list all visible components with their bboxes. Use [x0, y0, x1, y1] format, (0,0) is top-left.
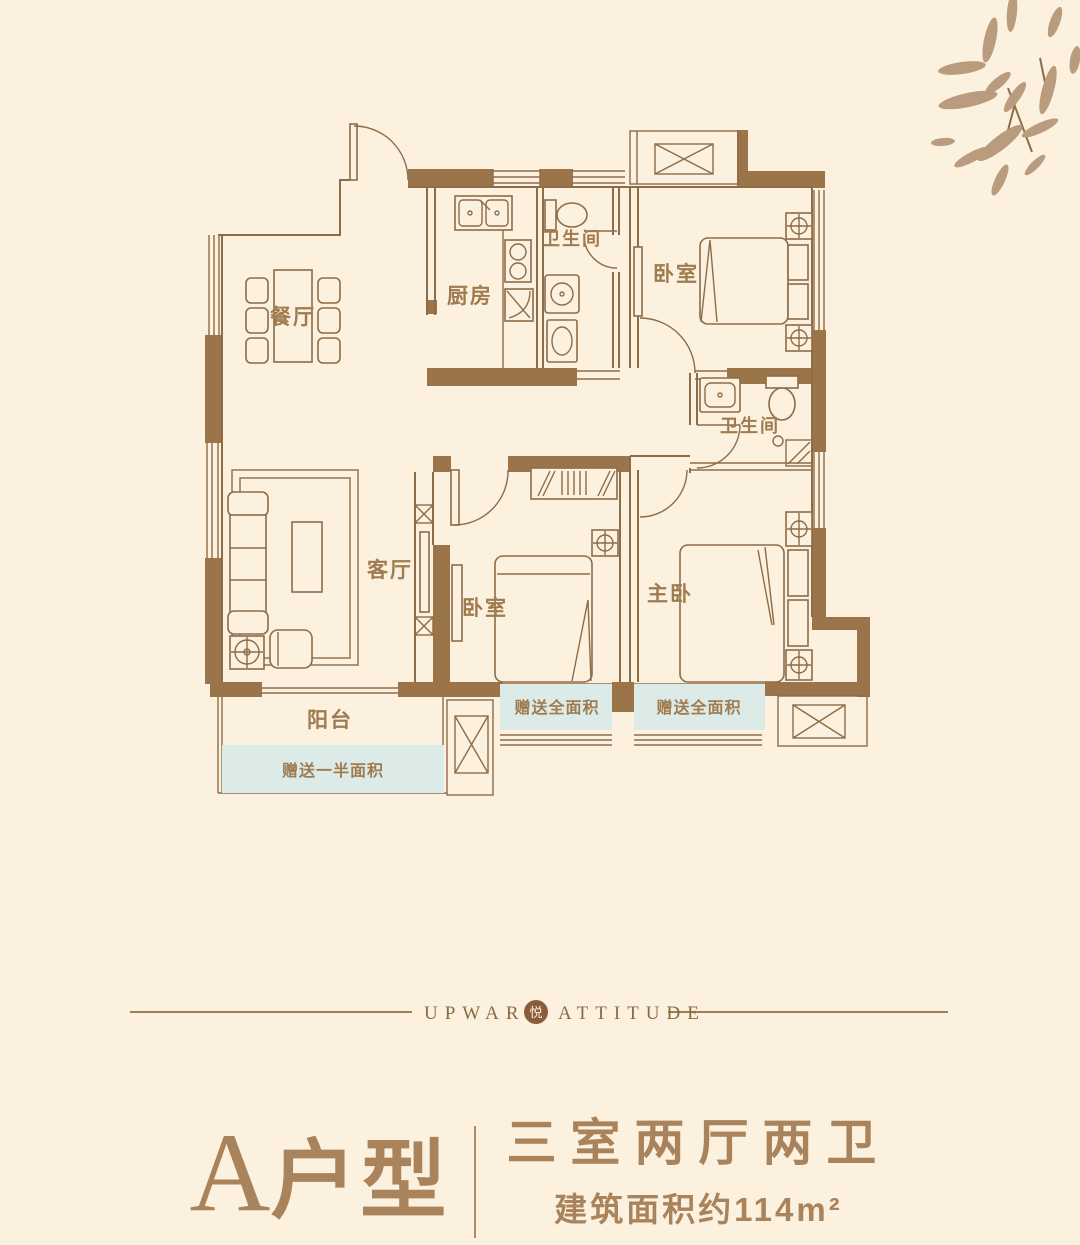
building-area-label: 建筑面积约114m² [554, 1183, 843, 1231]
headboard-cushion [788, 550, 808, 596]
kitchen-fixtures [455, 196, 533, 368]
bedroom2-door-arc [455, 470, 508, 525]
master-furniture [680, 512, 812, 682]
floor-drain [773, 436, 783, 446]
kitchen-sink [455, 196, 512, 230]
headboard-cushion [788, 245, 808, 280]
plan-spec: 三室两厅两卫 建筑面积约114m² [506, 1116, 890, 1231]
floorplan-page: { "plan": { "rooms": { "dining": "餐厅", "… [0, 0, 1080, 1245]
floor-plan-svg: 赠送一半面积 赠送全面积 赠送全面积 [0, 0, 1080, 1045]
gift-label-full-2: 赠送全面积 [656, 698, 741, 717]
room-label-dining: 餐厅 [270, 305, 316, 329]
room-label-bedroom1: 卧室 [653, 262, 699, 286]
dining-chair [318, 338, 340, 363]
bedroom2-door-leaf [451, 470, 459, 525]
sofa-armrest [228, 492, 268, 516]
entry-door-arc [354, 126, 408, 180]
tv-icon [420, 532, 429, 612]
gift-label-full-1: 赠送全面积 [514, 698, 599, 717]
room-label-living: 客厅 [367, 558, 413, 582]
bed [680, 545, 784, 682]
plan-title-block: A户型 三室两厅两卫 建筑面积约114m² [0, 1108, 1080, 1238]
master-door-arc [640, 470, 687, 517]
unit-type-label: 户型 [270, 1138, 450, 1224]
bath1-fixtures [545, 200, 587, 362]
brand-seal-glyph: 悦 [529, 1005, 542, 1020]
gift-label-half: 赠送一半面积 [282, 761, 384, 780]
tv-icon [452, 565, 462, 641]
bedroom1-door-arc [640, 318, 695, 373]
brand-divider: UPWARD 悦 ATTITUDE [130, 1000, 948, 1024]
room-count-label: 三室两厅两卫 [506, 1116, 890, 1171]
coffee-table [292, 522, 322, 592]
washing-machine-icon [545, 275, 579, 313]
unit-name: A户型 [190, 1117, 451, 1229]
toilet-icon [557, 203, 587, 227]
bedroom1-furniture [700, 213, 812, 351]
entry-door-leaf [350, 124, 357, 180]
brand-text-right: ATTITUDE [558, 1003, 706, 1024]
title-divider [474, 1126, 476, 1238]
dining-chair [318, 308, 340, 333]
room-label-master: 主卧 [647, 583, 693, 606]
room-label-kitchen: 厨房 [447, 284, 493, 308]
bedroom2-furniture [452, 468, 618, 682]
headboard-cushion [788, 600, 808, 646]
toilet-tank [545, 200, 556, 230]
armchair [270, 630, 312, 668]
sofa [230, 515, 266, 612]
headboard-cushion [788, 284, 808, 319]
bed [495, 556, 592, 682]
dining-chair [246, 278, 268, 303]
unit-letter: A [190, 1117, 271, 1229]
dining-chair [246, 338, 268, 363]
room-label-bath1: 卫生间 [542, 228, 602, 249]
dining-chair [318, 278, 340, 303]
bamboo-leaves-decoration [931, 0, 1080, 198]
toilet-tank [766, 376, 798, 388]
room-label-bedroom2: 卧室 [462, 596, 508, 620]
sofa-armrest [228, 611, 268, 634]
room-label-balcony: 阳台 [307, 708, 353, 732]
bedroom1-door-leaf [634, 247, 642, 316]
dining-chair [246, 308, 268, 333]
room-label-bath2: 卫生间 [720, 415, 780, 436]
stove-icon [505, 240, 531, 282]
